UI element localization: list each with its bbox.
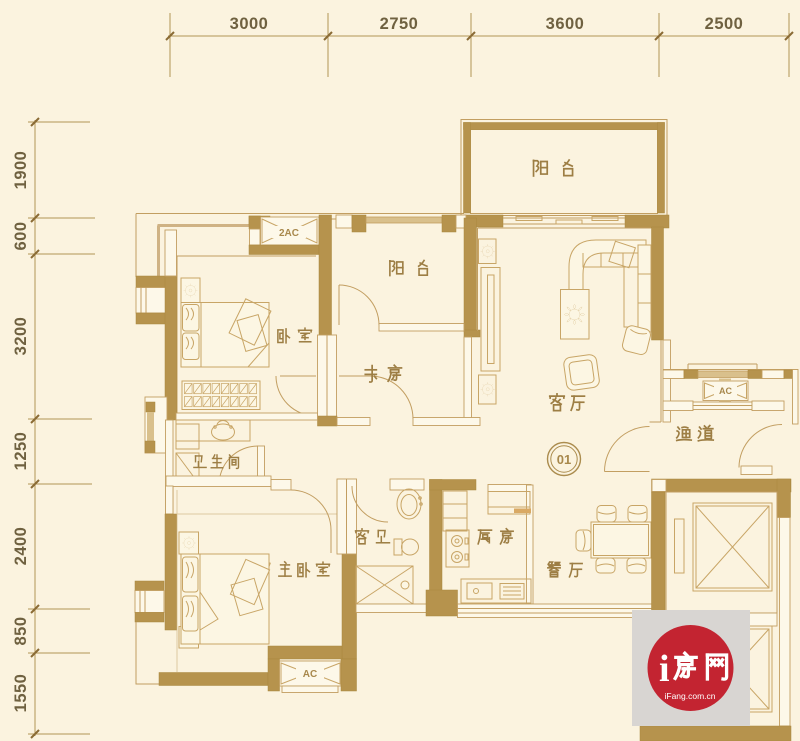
svg-text:1550: 1550 <box>12 674 30 713</box>
svg-text:600: 600 <box>12 221 30 250</box>
svg-text:iFang.com.cn: iFang.com.cn <box>664 691 715 701</box>
svg-text:2750: 2750 <box>380 15 419 33</box>
svg-text:i: i <box>659 648 670 690</box>
svg-text:1900: 1900 <box>12 151 30 190</box>
svg-text:1250: 1250 <box>12 432 30 471</box>
svg-text:2500: 2500 <box>705 15 744 33</box>
svg-text:AC: AC <box>303 669 317 680</box>
svg-text:2400: 2400 <box>12 527 30 566</box>
svg-text:AC: AC <box>719 386 732 396</box>
svg-text:2AC: 2AC <box>279 228 299 239</box>
svg-text:01: 01 <box>557 452 571 467</box>
svg-text:3600: 3600 <box>546 15 585 33</box>
svg-text:3200: 3200 <box>12 317 30 356</box>
svg-text:3000: 3000 <box>230 15 269 33</box>
svg-text:850: 850 <box>12 616 30 645</box>
